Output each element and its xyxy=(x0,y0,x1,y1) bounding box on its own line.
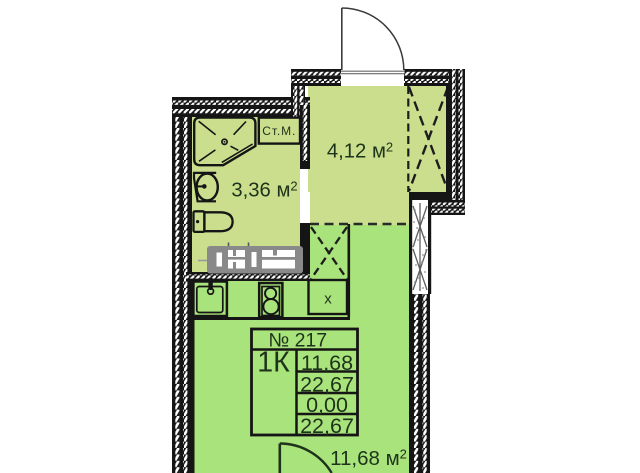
svg-text:3,36 м2: 3,36 м2 xyxy=(231,179,297,202)
svg-text:4,12 м2: 4,12 м2 xyxy=(327,140,393,163)
svg-text:x: x xyxy=(324,291,332,308)
svg-text:11,68: 11,68 xyxy=(301,351,353,375)
svg-text:22,67: 22,67 xyxy=(300,414,354,438)
svg-text:Ст.М.: Ст.М. xyxy=(262,124,296,138)
svg-text:1К: 1К xyxy=(257,347,290,379)
svg-text:11,68 м2: 11,68 м2 xyxy=(330,447,407,471)
